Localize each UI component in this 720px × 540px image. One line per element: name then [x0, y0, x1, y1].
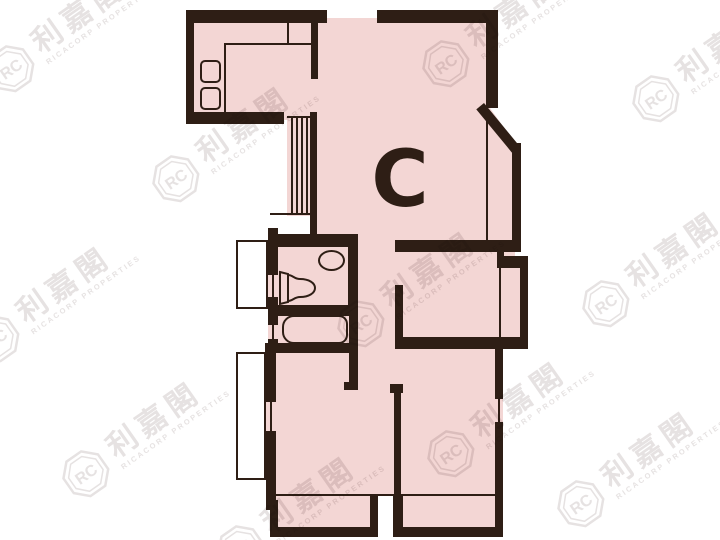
wall-segment — [186, 10, 194, 124]
watermark-brand-cn: 利嘉閣 — [101, 362, 228, 465]
watermark-brand-cn: 利嘉閣 — [11, 227, 138, 330]
wall-segment — [486, 10, 498, 108]
louvre-window-icon — [306, 117, 308, 215]
wall-segment — [265, 343, 355, 353]
ricacorp-logo-icon: RC — [209, 517, 273, 540]
watermark: RC 利嘉閣 RICACORP PROPERTIES — [54, 360, 234, 506]
window-mullion — [498, 399, 500, 422]
wall-segment — [395, 337, 528, 349]
floor-plan: C RC 利嘉閣 RICACORP PROPERTIES RC 利嘉閣 RICA… — [0, 0, 720, 540]
ricacorp-logo-icon: RC — [549, 472, 613, 536]
stove-burner-icon — [200, 60, 221, 83]
watermark-brand-en: RICACORP PROPERTIES — [120, 389, 233, 472]
window — [266, 400, 276, 433]
ricacorp-logo-icon: RC — [0, 307, 28, 371]
watermark: RC 利嘉閣 RICACORP PROPERTIES — [624, 0, 720, 131]
bathtub-icon — [282, 315, 348, 344]
stove-burner-icon — [200, 87, 221, 110]
svg-text:RC: RC — [162, 166, 191, 193]
wall-segment — [495, 348, 503, 530]
bay-sill-line — [276, 494, 394, 496]
wall-segment — [310, 112, 317, 234]
svg-text:RC: RC — [592, 291, 621, 318]
louvre-window-icon — [291, 117, 293, 215]
toilet-icon — [277, 270, 319, 306]
ricacorp-logo-icon: RC — [0, 37, 43, 101]
watermark-brand-en: RICACORP PROPERTIES — [30, 254, 143, 337]
wall-segment — [512, 143, 521, 252]
wall-segment — [349, 316, 358, 390]
wall-segment — [344, 382, 358, 390]
unit-label: C — [370, 140, 430, 220]
wall-segment — [394, 385, 401, 505]
kitchen-counter-line — [225, 43, 311, 45]
ricacorp-logo-icon: RC — [624, 67, 688, 131]
watermark-brand-cn: 利嘉閣 — [26, 0, 153, 60]
louvre-window-icon — [301, 117, 303, 215]
watermark: RC 利嘉閣 RICACORP PROPERTIES — [549, 390, 720, 536]
svg-text:RC: RC — [72, 461, 101, 488]
svg-text:RC: RC — [567, 491, 596, 518]
wall-segment — [393, 527, 503, 537]
wall-segment — [270, 527, 377, 537]
watermark-brand-cn: 利嘉閣 — [596, 392, 720, 495]
window-mullion — [272, 275, 274, 297]
ricacorp-logo-icon: RC — [144, 147, 208, 211]
ricacorp-logo-icon: RC — [574, 272, 638, 336]
watermark-brand-en: RICACORP PROPERTIES — [45, 0, 158, 67]
louvre-window-icon — [296, 117, 298, 215]
external-platform-lower — [236, 352, 266, 480]
svg-text:RC: RC — [0, 56, 26, 83]
watermark-brand-cn: 利嘉閣 — [671, 0, 720, 90]
watermark-brand-en: RICACORP PROPERTIES — [615, 419, 720, 502]
svg-text:RC: RC — [0, 326, 11, 353]
external-platform-upper — [236, 240, 268, 309]
wall-segment — [186, 10, 327, 23]
kitchen-counter-line — [224, 43, 226, 112]
bedroom-2 — [397, 349, 499, 496]
watermark-brand-cn: 利嘉閣 — [621, 192, 720, 295]
svg-text:RC: RC — [227, 536, 256, 540]
watermark: RC 利嘉閣 RICACORP PROPERTIES — [574, 190, 720, 336]
watermark: RC 利嘉閣 RICACORP PROPERTIES — [0, 0, 159, 101]
bedroom-3 — [266, 351, 396, 496]
svg-text:RC: RC — [642, 86, 671, 113]
partition-line — [486, 110, 488, 240]
partition-line — [270, 213, 310, 215]
wall-segment — [520, 256, 528, 349]
bay-sill-line — [397, 494, 497, 496]
wall-segment — [348, 246, 358, 312]
wall-segment — [395, 285, 403, 340]
wall-segment — [370, 494, 378, 537]
window-mullion — [272, 325, 274, 339]
partition-line — [499, 268, 501, 337]
watermark-brand-en: RICACORP PROPERTIES — [690, 14, 720, 97]
bay-window-left — [274, 494, 374, 530]
wall-segment — [377, 10, 497, 23]
bay-window-right — [397, 494, 499, 530]
wall-segment — [268, 234, 358, 247]
window — [268, 323, 278, 341]
watermark: RC 利嘉閣 RICACORP PROPERTIES — [0, 225, 144, 371]
window — [495, 397, 503, 424]
wall-segment — [186, 112, 284, 124]
wall-segment — [311, 22, 318, 79]
window-mullion — [270, 402, 272, 431]
watermark-brand-en: RICACORP PROPERTIES — [640, 219, 720, 302]
ricacorp-logo-icon: RC — [54, 442, 118, 506]
kitchen-counter-line — [287, 22, 289, 44]
basin-icon — [318, 250, 345, 271]
